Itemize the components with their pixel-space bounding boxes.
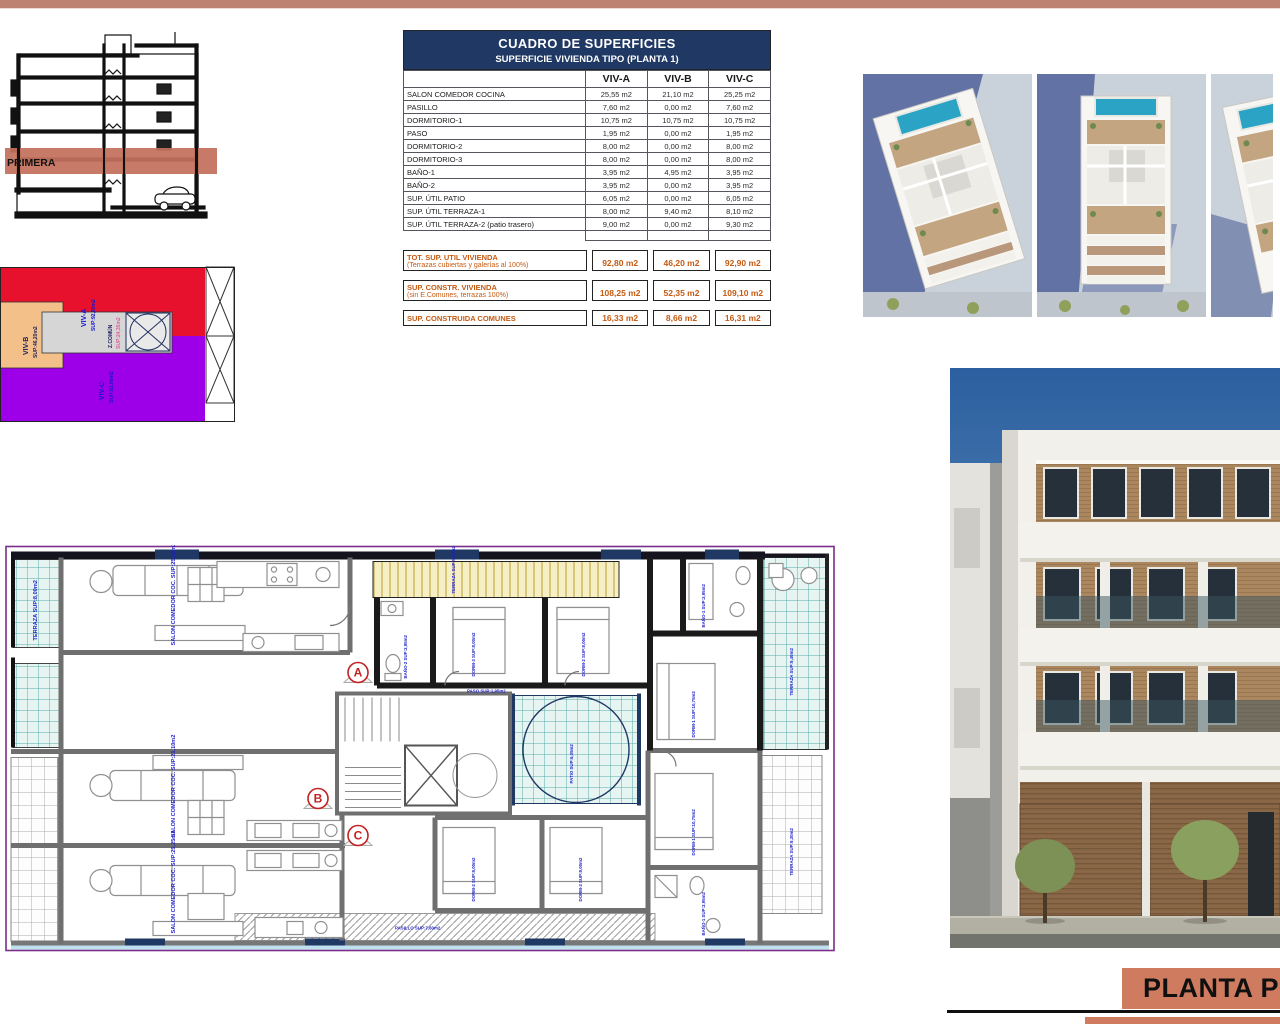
- building-section-drawing: PRIMERA: [5, 30, 217, 228]
- table-row: BAÑO-13,95 m24,95 m23,95 m2: [404, 166, 771, 179]
- col-viv-b: VIV-B: [647, 71, 709, 88]
- table-row: DORMITORIO-110,75 m210,75 m210,75 m2: [404, 114, 771, 127]
- stair-core: [337, 694, 510, 814]
- svg-text:BAÑO-1 SUP:3,95m2: BAÑO-1 SUP:3,95m2: [701, 584, 706, 628]
- surface-table-header: CUADRO DE SUPERFICIES SUPERFICIE VIVIEND…: [403, 30, 771, 70]
- corner-cell: [404, 71, 586, 88]
- total-comunes-viv-c: 16,31 m2: [715, 310, 771, 326]
- street: [950, 916, 1280, 948]
- total-util-viv-b: 46,20 m2: [653, 250, 709, 271]
- total-util-label: TOT. SUP. UTIL VIVIENDA: [407, 253, 583, 262]
- total-util-viv-a: 92,80 m2: [592, 250, 648, 271]
- svg-text:PASILLO SUP:7,60m2: PASILLO SUP:7,60m2: [395, 926, 441, 931]
- section-band-label: PRIMERA: [7, 157, 56, 169]
- total-comunes-block: SUP. CONSTRUIDA COMUNES 16,33 m2 8,66 m2…: [403, 310, 771, 326]
- svg-text:SALON COMEDOR COC. SUP:21,10m2: SALON COMEDOR COC. SUP:21,10m2: [171, 735, 177, 838]
- planta-primera-band: PRIMERA: [5, 148, 217, 174]
- planta-title: PLANTA P: [1122, 968, 1280, 1009]
- table-row: SUP. ÚTIL TERRAZA-18,00 m29,40 m28,10 m2: [404, 205, 771, 218]
- viv-a-sup: SUP:92,80m2: [91, 299, 97, 331]
- top-accent-bar: [0, 0, 1280, 9]
- table-row: DORMITORIO-28,00 m20,00 m28,00 m2: [404, 140, 771, 153]
- table-subtitle: SUPERFICIE VIVIENDA TIPO (PLANTA 1): [406, 54, 768, 65]
- aerial-render-2: [1037, 74, 1206, 317]
- apartment-key-plan: VIV-A SUP:92,80m2 VIV-B SUP:46,20m2 VIV-…: [0, 255, 248, 425]
- svg-text:TERRAZA SUP:8,00m2: TERRAZA SUP:8,00m2: [33, 580, 39, 640]
- bottom-accent-bar: [1085, 1017, 1280, 1024]
- total-constr-label: SUP. CONSTR. VIVIENDA: [407, 283, 583, 292]
- svg-text:DORM-2 SUP:8,00m2: DORM-2 SUP:8,00m2: [581, 632, 586, 676]
- z-comun-sup: SUP:24,35m2: [116, 317, 122, 349]
- total-constr-sublabel: (sin E.Comunes, terrazas 100%): [407, 292, 583, 299]
- table-row: BAÑO-23,95 m20,00 m23,95 m2: [404, 179, 771, 192]
- total-comunes-viv-b: 8,66 m2: [653, 310, 709, 326]
- svg-text:DORM-2 SUP:8,00m2: DORM-2 SUP:8,00m2: [471, 857, 476, 901]
- planta-title-box: PLANTA P: [1122, 968, 1280, 1009]
- table-row: PASILLO7,60 m20,00 m27,60 m2: [404, 101, 771, 114]
- svg-text:SALON COMEDOR COC. SUP:25,55m2: SALON COMEDOR COC. SUP:25,55m2: [171, 545, 177, 646]
- terrace-yellow: [373, 562, 619, 598]
- viv-b-sup: SUP:46,20m2: [33, 326, 39, 358]
- table-row: SUP. ÚTIL PATIO6,05 m20,00 m26,05 m2: [404, 192, 771, 205]
- total-constr-viv-b: 52,35 m2: [653, 280, 709, 301]
- table-row: SUP. ÚTIL TERRAZA-2 (patio trasero)9,00 …: [404, 218, 771, 231]
- svg-text:DORM-3 SUP:8,00m2: DORM-3 SUP:8,00m2: [578, 857, 583, 901]
- architectural-plan-sheet: PRIMERA: [0, 0, 1280, 1024]
- col-viv-c: VIV-C: [709, 71, 771, 88]
- svg-text:BAÑO-2 SUP:3,95m2: BAÑO-2 SUP:3,95m2: [403, 635, 408, 679]
- svg-text:DORM-3 SUP:8,00m2: DORM-3 SUP:8,00m2: [471, 632, 476, 676]
- total-comunes-label: SUP. CONSTRUIDA COMUNES: [407, 314, 516, 323]
- svg-text:SALON COMEDOR COC. SUP:25,25m2: SALON COMEDOR COC. SUP:25,25m2: [171, 831, 177, 934]
- svg-text:C: C: [354, 829, 363, 843]
- svg-text:PASO SUP:1,95m2: PASO SUP:1,95m2: [467, 689, 506, 694]
- aerial-renders: [863, 74, 1280, 317]
- svg-text:BAÑO-1 SUP:3,95m2: BAÑO-1 SUP:3,95m2: [701, 892, 706, 936]
- total-constr-viv-a: 108,25 m2: [592, 280, 648, 301]
- terraza-box: [206, 267, 234, 403]
- terrace-right: [763, 558, 827, 750]
- stair-core: [126, 313, 170, 351]
- total-util-block: TOT. SUP. UTIL VIVIENDA (Terrazas cubier…: [403, 250, 771, 271]
- facade-render: [950, 368, 1280, 948]
- svg-text:TERRAZA SUP:9,00m2: TERRAZA SUP:9,00m2: [451, 546, 456, 594]
- patio: [513, 696, 639, 804]
- neighbour-building: [950, 463, 1002, 948]
- svg-text:DORM-1 SUP:10,75m2: DORM-1 SUP:10,75m2: [691, 809, 696, 856]
- svg-text:A: A: [354, 666, 363, 680]
- viv-c-sup: SUP:92,90m2: [109, 371, 115, 403]
- terrace-left-mid: [13, 664, 59, 748]
- total-constr-block: SUP. CONSTR. VIVIENDA (sin E.Comunes, te…: [403, 280, 771, 301]
- total-constr-viv-c: 109,10 m2: [715, 280, 771, 301]
- svg-text:DORM-1 SUP:10,75m2: DORM-1 SUP:10,75m2: [691, 691, 696, 738]
- terrace-left-bottom: [11, 758, 58, 942]
- table-row: DORMITORIO-38,00 m20,00 m28,00 m2: [404, 153, 771, 166]
- surface-table-grid: VIV-A VIV-B VIV-C SALON COMEDOR COCINA25…: [403, 70, 771, 241]
- svg-text:TERRAZA SUP:9,30m2: TERRAZA SUP:9,30m2: [789, 828, 794, 876]
- aerial-render-1: [863, 74, 1032, 317]
- svg-text:PATIO SUP:6,05m2: PATIO SUP:6,05m2: [569, 744, 574, 784]
- total-comunes-viv-a: 16,33 m2: [592, 310, 648, 326]
- svg-text:B: B: [314, 792, 323, 806]
- col-viv-a: VIV-A: [586, 71, 648, 88]
- floor-plan: SALON COMEDOR COC. SUP:25,55m2 TERRAZA S…: [5, 545, 835, 952]
- spacer-row: [404, 231, 771, 241]
- table-title: CUADRO DE SUPERFICIES: [406, 36, 768, 51]
- table-row: PASO1,95 m20,00 m21,95 m2: [404, 127, 771, 140]
- viv-a-label: VIV-A: [81, 309, 88, 327]
- viv-c-label: VIV-C: [99, 382, 106, 400]
- aerial-render-3: [1211, 74, 1273, 317]
- sidewalk-strip: [11, 946, 829, 950]
- title-block-line: [947, 1010, 1280, 1013]
- table-row: SALON COMEDOR COCINA25,55 m221,10 m225,2…: [404, 88, 771, 101]
- viv-b-label: VIV-B: [23, 337, 30, 355]
- svg-text:TERRAZA SUP:9,40m2: TERRAZA SUP:9,40m2: [789, 648, 794, 696]
- total-util-viv-c: 92,90 m2: [715, 250, 771, 271]
- total-util-sublabel: (Terrazas cubiertas y galerías al 100%): [407, 262, 583, 269]
- z-comun-label: Z.COMÚN: [107, 324, 114, 348]
- surface-table: CUADRO DE SUPERFICIES SUPERFICIE VIVIEND…: [403, 30, 771, 326]
